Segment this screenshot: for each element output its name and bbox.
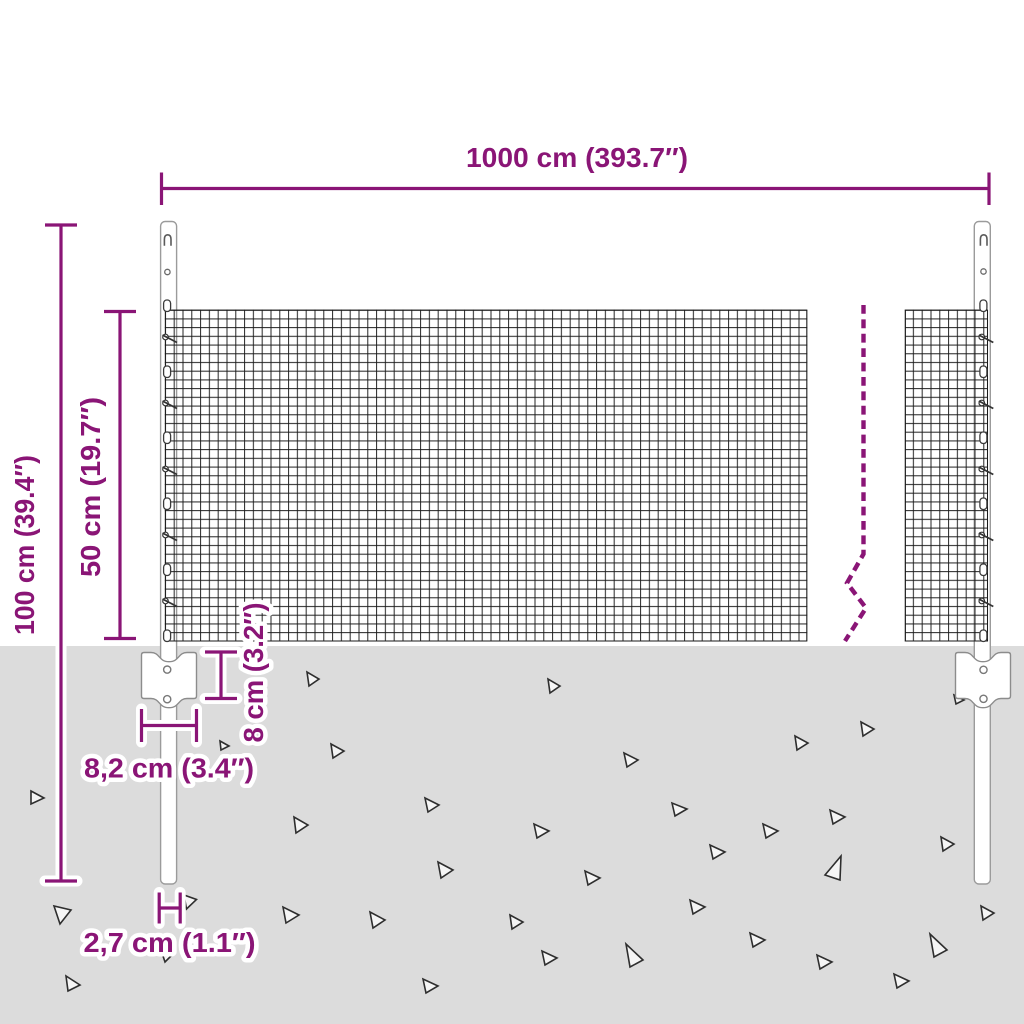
svg-text:2,7 cm (1.1″): 2,7 cm (1.1″) [84,927,256,958]
svg-text:50 cm (19.7″): 50 cm (19.7″) [75,397,106,577]
svg-text:1000 cm (393.7″): 1000 cm (393.7″) [466,142,688,173]
svg-text:8 cm (3.2″): 8 cm (3.2″) [238,603,269,743]
svg-text:100 cm (39.4″): 100 cm (39.4″) [9,455,40,635]
svg-text:8,2 cm (3.4″): 8,2 cm (3.4″) [84,753,254,784]
